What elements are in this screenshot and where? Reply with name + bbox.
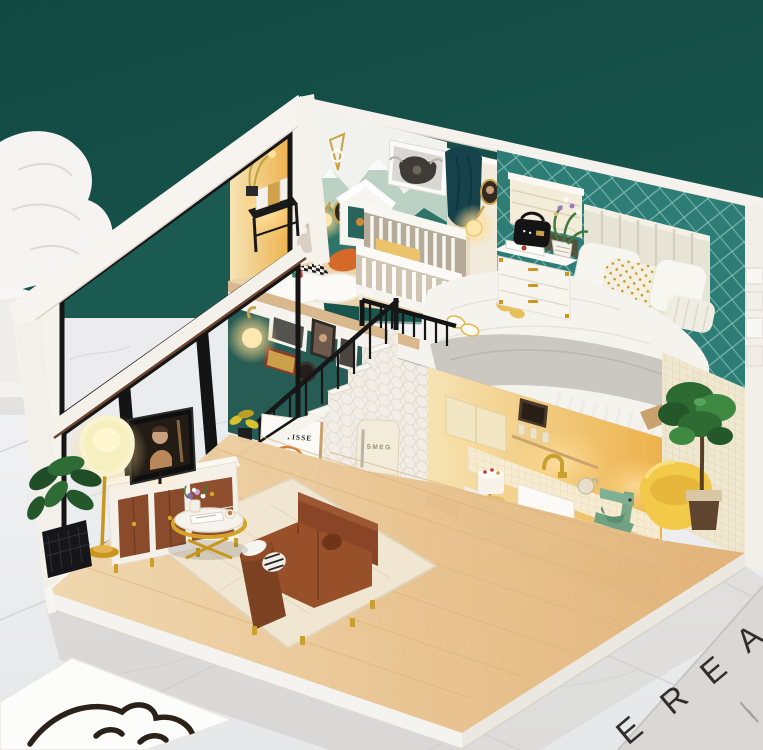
photo-stage: E R E A [0,0,763,750]
fridge-brand: SMEG [366,444,391,452]
cameo-portrait [481,180,499,204]
right-wall-trim [745,204,763,572]
